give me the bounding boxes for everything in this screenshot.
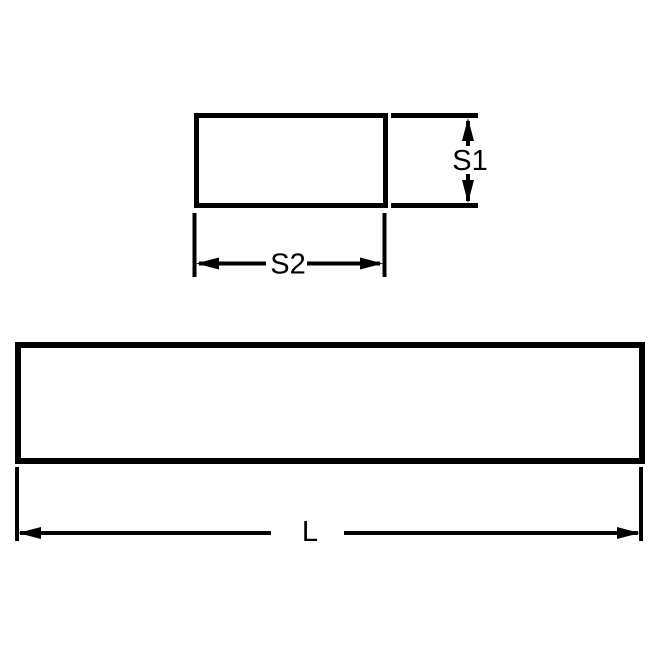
dimension-l: L: [17, 467, 641, 548]
s2-dimension-label: S2: [270, 249, 305, 281]
s1-arrowhead-down: [462, 180, 474, 203]
dimension-s1: S1: [391, 116, 488, 206]
s2-arrowhead-right: [360, 258, 383, 270]
side-view: L: [17, 345, 642, 548]
technical-drawing-canvas: S1 S2 L: [0, 0, 670, 670]
cross-section-view: S1 S2: [195, 116, 488, 281]
l-arrowhead-left: [18, 527, 41, 539]
l-dimension-label: L: [302, 516, 318, 548]
keystock-dimension-diagram: S1 S2 L: [0, 0, 670, 670]
cross-section-rect: [197, 116, 386, 206]
s1-arrowhead-up: [462, 118, 474, 141]
side-view-rect: [18, 345, 642, 461]
dimension-s2: S2: [195, 213, 385, 281]
l-arrowhead-right: [617, 527, 640, 539]
s2-arrowhead-left: [196, 258, 219, 270]
s1-dimension-label: S1: [452, 145, 487, 177]
